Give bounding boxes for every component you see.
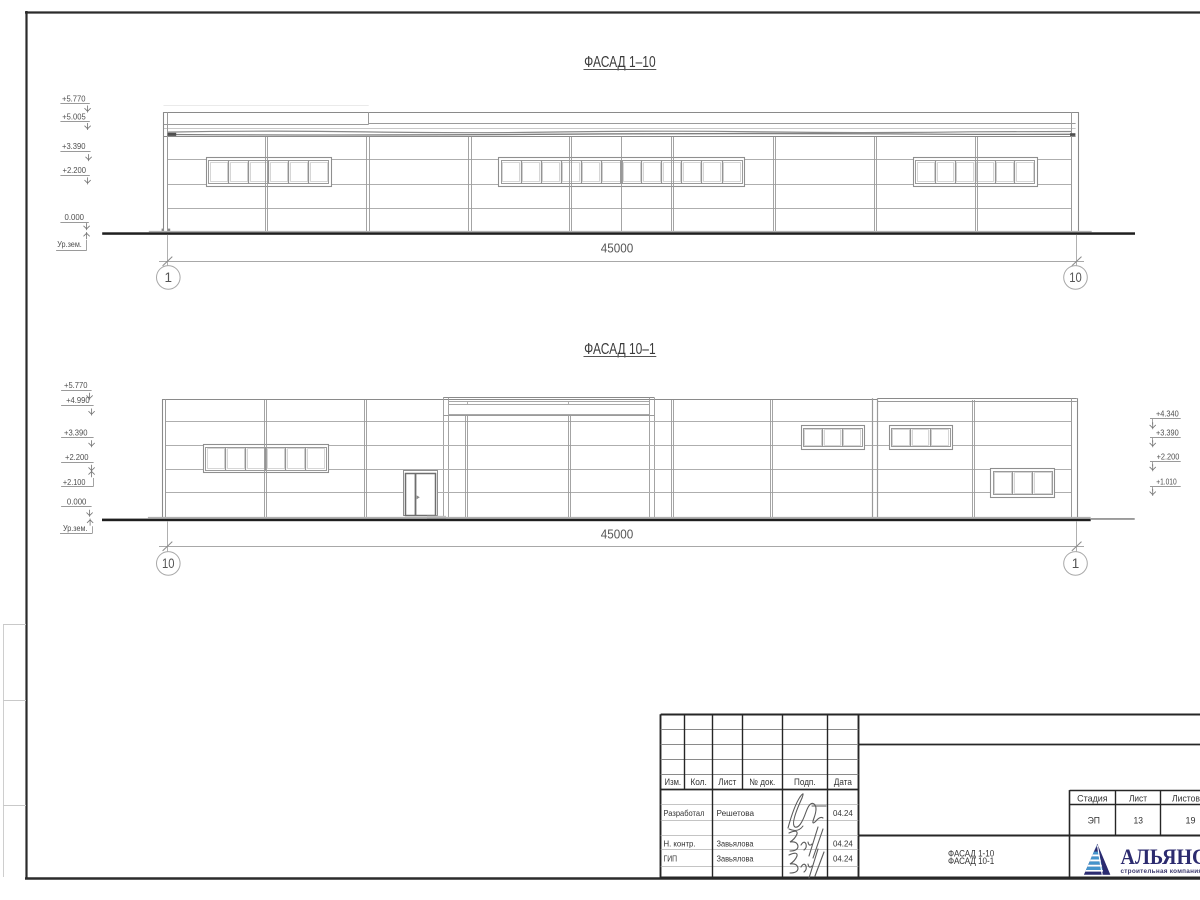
svg-text:Лист: Лист xyxy=(718,777,737,787)
svg-text:Лист: Лист xyxy=(1129,794,1148,804)
svg-text:+3.390: +3.390 xyxy=(64,428,88,438)
svg-text:0.000: 0.000 xyxy=(67,497,87,507)
svg-text:10: 10 xyxy=(1069,270,1082,285)
svg-text:Ур.зем.: Ур.зем. xyxy=(57,239,82,249)
svg-text:19: 19 xyxy=(1186,816,1196,827)
svg-text:13: 13 xyxy=(1134,816,1144,827)
svg-text:ГИП: ГИП xyxy=(664,854,678,864)
svg-text:Стадия: Стадия xyxy=(1077,794,1108,804)
svg-text:+5.770: +5.770 xyxy=(64,380,88,390)
svg-text:Решетова: Решетова xyxy=(717,808,755,818)
svg-text:04.24: 04.24 xyxy=(833,808,853,818)
svg-text:1: 1 xyxy=(1072,556,1080,571)
svg-text:+5.005: +5.005 xyxy=(62,111,86,121)
svg-text:ЭП: ЭП xyxy=(1088,816,1100,827)
svg-text:+3.390: +3.390 xyxy=(62,141,86,151)
svg-text:Завьялова: Завьялова xyxy=(717,839,754,849)
svg-text:Листов: Листов xyxy=(1172,794,1200,804)
svg-text:строительная компания: строительная компания xyxy=(1121,868,1200,875)
svg-text:ФАСАД 1–10: ФАСАД 1–10 xyxy=(584,54,656,71)
svg-text:Изм.: Изм. xyxy=(665,777,682,787)
svg-text:1: 1 xyxy=(165,270,173,285)
svg-text:+1.010: +1.010 xyxy=(1156,477,1177,487)
svg-text:Разработал: Разработал xyxy=(664,808,705,818)
svg-text:Н. контр.: Н. контр. xyxy=(664,839,696,849)
svg-text:Ур.зем.: Ур.зем. xyxy=(63,523,88,533)
svg-text:+2.200: +2.200 xyxy=(1157,451,1180,461)
svg-text:0.000: 0.000 xyxy=(65,212,85,222)
svg-text:ФАСАД 10-1: ФАСАД 10-1 xyxy=(948,856,994,866)
svg-text:04.24: 04.24 xyxy=(833,854,853,864)
svg-text:Дата: Дата xyxy=(834,777,853,787)
svg-text:Кол.: Кол. xyxy=(690,777,707,787)
svg-text:АЛЬЯНС: АЛЬЯНС xyxy=(1121,844,1200,869)
svg-text:+3.390: +3.390 xyxy=(1156,428,1179,438)
svg-text:45000: 45000 xyxy=(601,526,634,541)
svg-text:+2.200: +2.200 xyxy=(65,452,89,462)
svg-text:Завьялова: Завьялова xyxy=(717,854,754,864)
svg-text:+5.770: +5.770 xyxy=(62,94,86,104)
svg-text:+2.100: +2.100 xyxy=(63,477,86,487)
svg-text:+2.200: +2.200 xyxy=(63,165,87,175)
svg-text:+4.340: +4.340 xyxy=(1156,409,1179,419)
svg-text:04.24: 04.24 xyxy=(833,839,853,849)
svg-text:45000: 45000 xyxy=(601,240,634,255)
svg-text:+4.990: +4.990 xyxy=(66,395,90,405)
svg-text:Подп.: Подп. xyxy=(794,777,816,787)
svg-text:№ док.: № док. xyxy=(749,777,775,787)
svg-text:10: 10 xyxy=(162,556,175,571)
svg-text:ФАСАД 10–1: ФАСАД 10–1 xyxy=(584,341,656,358)
